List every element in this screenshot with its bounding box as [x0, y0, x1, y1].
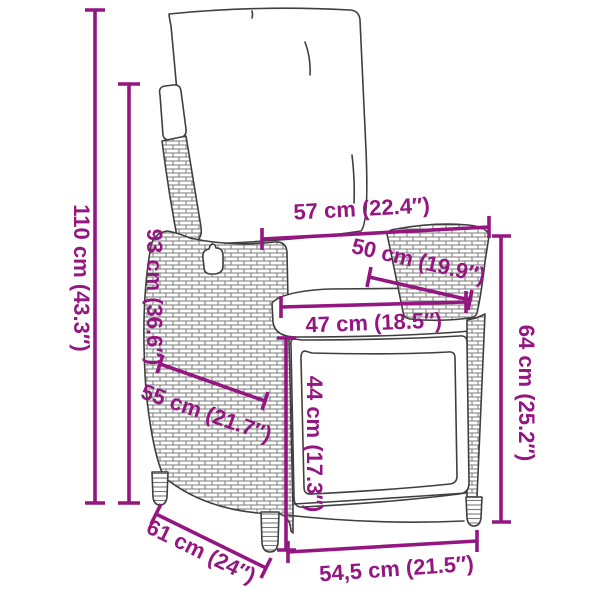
right-side-strip [467, 314, 485, 497]
armrest-height-dim-line [492, 236, 511, 522]
overall-height-label: 110 cm (43.3″) [69, 204, 94, 352]
backrest-height-label: 93 cm (36.6″) [142, 229, 167, 366]
backrest-height-dim-line [118, 84, 140, 503]
armrest-height-label: 64 cm (25.2″) [514, 325, 539, 462]
garden-chair-dimension-diagram: 110 cm (43.3″) 93 cm (36.6″) 57 cm (22.4… [0, 0, 600, 600]
seat-height-label: 44 cm (17.3″) [302, 376, 327, 513]
base-depth-label: 61 cm (24″) [143, 514, 260, 588]
rear-left-foot [152, 472, 168, 505]
center-front-foot [261, 512, 279, 552]
base-width-label: 54,5 cm (21.5″) [318, 551, 474, 587]
dimension-diagram-canvas: 110 cm (43.3″) 93 cm (36.6″) 57 cm (22.4… [0, 0, 600, 600]
right-front-foot [466, 497, 482, 526]
seat-width-label: 47 cm (18.5″) [305, 308, 442, 338]
